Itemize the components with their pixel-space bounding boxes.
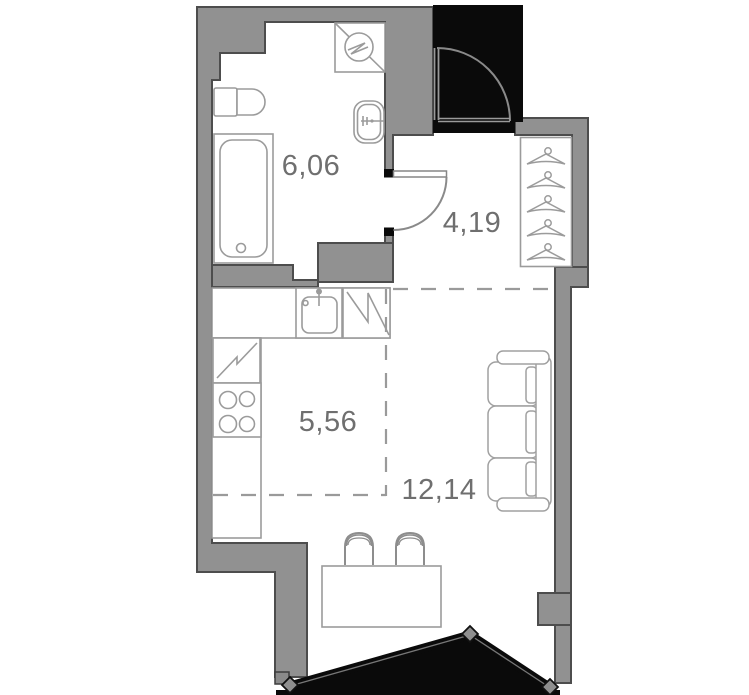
wardrobe xyxy=(521,138,572,267)
chair-icon xyxy=(345,533,424,565)
chair-icon xyxy=(396,533,424,565)
oven-icon xyxy=(213,338,260,383)
bathroom-door xyxy=(384,169,447,236)
door-jamb xyxy=(384,228,394,237)
toilet-icon xyxy=(214,88,265,116)
floor-plan: 6,06 4,19 5,56 12,14 xyxy=(0,0,749,695)
stove-icon xyxy=(213,383,261,437)
entry-core xyxy=(433,5,523,133)
door-jamb xyxy=(384,169,394,178)
room-label-hallway: 4,19 xyxy=(443,207,501,239)
door-leaf xyxy=(394,171,447,177)
bathtub-icon xyxy=(214,134,273,263)
room-label-living-room: 12,14 xyxy=(401,474,476,506)
dining-table xyxy=(322,566,441,627)
bathroom-door-arc xyxy=(394,177,447,230)
bay-window xyxy=(276,626,560,695)
room-label-kitchen: 5,56 xyxy=(299,406,357,438)
washbasin-icon xyxy=(354,101,384,143)
sofa-icon xyxy=(488,351,551,511)
washing-machine-icon xyxy=(335,23,385,72)
fridge-icon xyxy=(343,288,390,338)
core-threshold-band xyxy=(433,122,515,133)
bathroom-fixtures xyxy=(214,23,385,263)
room-label-bathroom: 6,06 xyxy=(282,150,340,182)
wall-pilaster xyxy=(538,593,571,625)
floor-plan-svg: 6,06 4,19 5,56 12,14 xyxy=(0,0,749,695)
core-block xyxy=(433,5,523,122)
kitchen-sink-icon xyxy=(296,288,342,338)
